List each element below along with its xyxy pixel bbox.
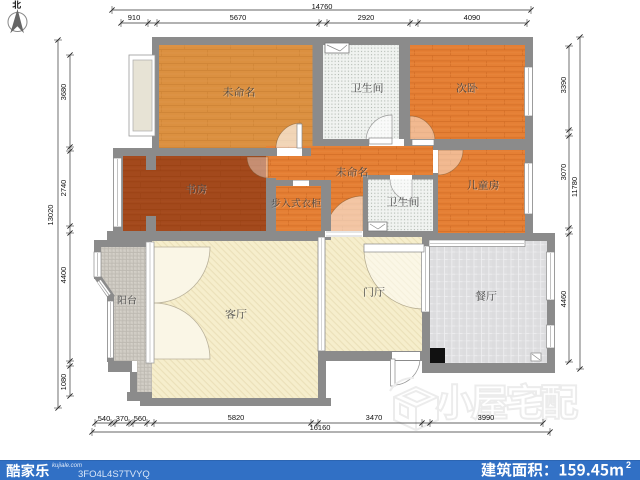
svg-text:11780: 11780 (570, 177, 579, 197)
svg-text:4400: 4400 (59, 267, 68, 284)
svg-text:13020: 13020 (46, 205, 55, 226)
svg-text:2920: 2920 (358, 13, 375, 22)
svg-text:5670: 5670 (230, 13, 247, 22)
svg-text:3990: 3990 (478, 413, 495, 422)
svg-text:5820: 5820 (228, 413, 245, 422)
svg-text:14760: 14760 (312, 2, 333, 11)
svg-text:3070: 3070 (559, 164, 568, 181)
svg-text:3FO4L4S7TVYQ: 3FO4L4S7TVYQ (78, 469, 150, 480)
svg-text:3390: 3390 (559, 77, 568, 94)
svg-text:910: 910 (128, 13, 141, 22)
svg-text:2740: 2740 (59, 180, 68, 197)
svg-text:2: 2 (626, 460, 631, 470)
svg-text:540: 540 (98, 414, 111, 423)
svg-text:3680: 3680 (59, 84, 68, 101)
svg-text:3470: 3470 (366, 413, 383, 422)
svg-text:16160: 16160 (310, 423, 331, 432)
svg-text:4460: 4460 (559, 291, 568, 308)
svg-text:560: 560 (134, 414, 147, 423)
svg-text:1080: 1080 (59, 374, 68, 391)
svg-text:370: 370 (116, 414, 129, 423)
svg-text:4090: 4090 (464, 13, 481, 22)
